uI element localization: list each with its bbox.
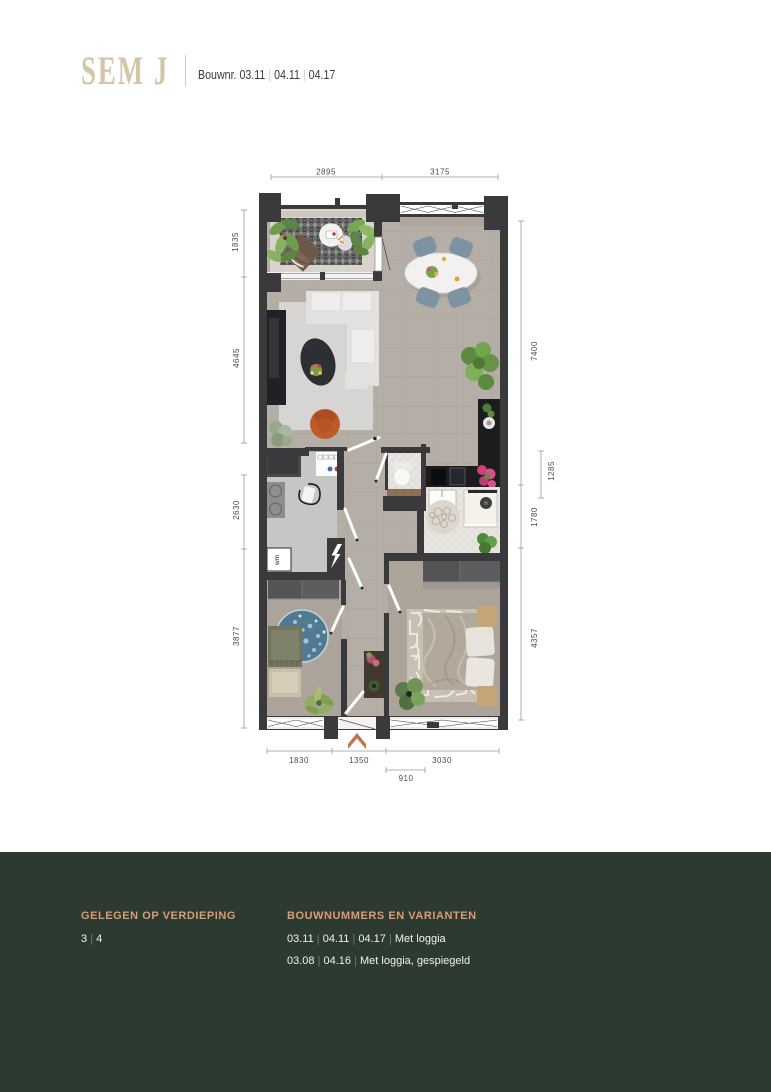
- svg-text:1285: 1285: [547, 461, 556, 481]
- svg-text:4645: 4645: [232, 348, 241, 368]
- svg-text:1350: 1350: [349, 756, 369, 765]
- svg-text:wm: wm: [274, 555, 281, 566]
- svg-text:1830: 1830: [289, 756, 309, 765]
- svg-text:2895: 2895: [316, 168, 336, 177]
- svg-text:2630: 2630: [232, 500, 241, 520]
- svg-text:3030: 3030: [432, 756, 452, 765]
- svg-text:1835: 1835: [231, 232, 240, 252]
- svg-text:3877: 3877: [232, 626, 241, 646]
- svg-text:7400: 7400: [530, 341, 539, 361]
- svg-text:4357: 4357: [530, 628, 539, 648]
- svg-text:910: 910: [399, 774, 414, 783]
- svg-text:1780: 1780: [530, 507, 539, 527]
- svg-text:3175: 3175: [430, 168, 450, 177]
